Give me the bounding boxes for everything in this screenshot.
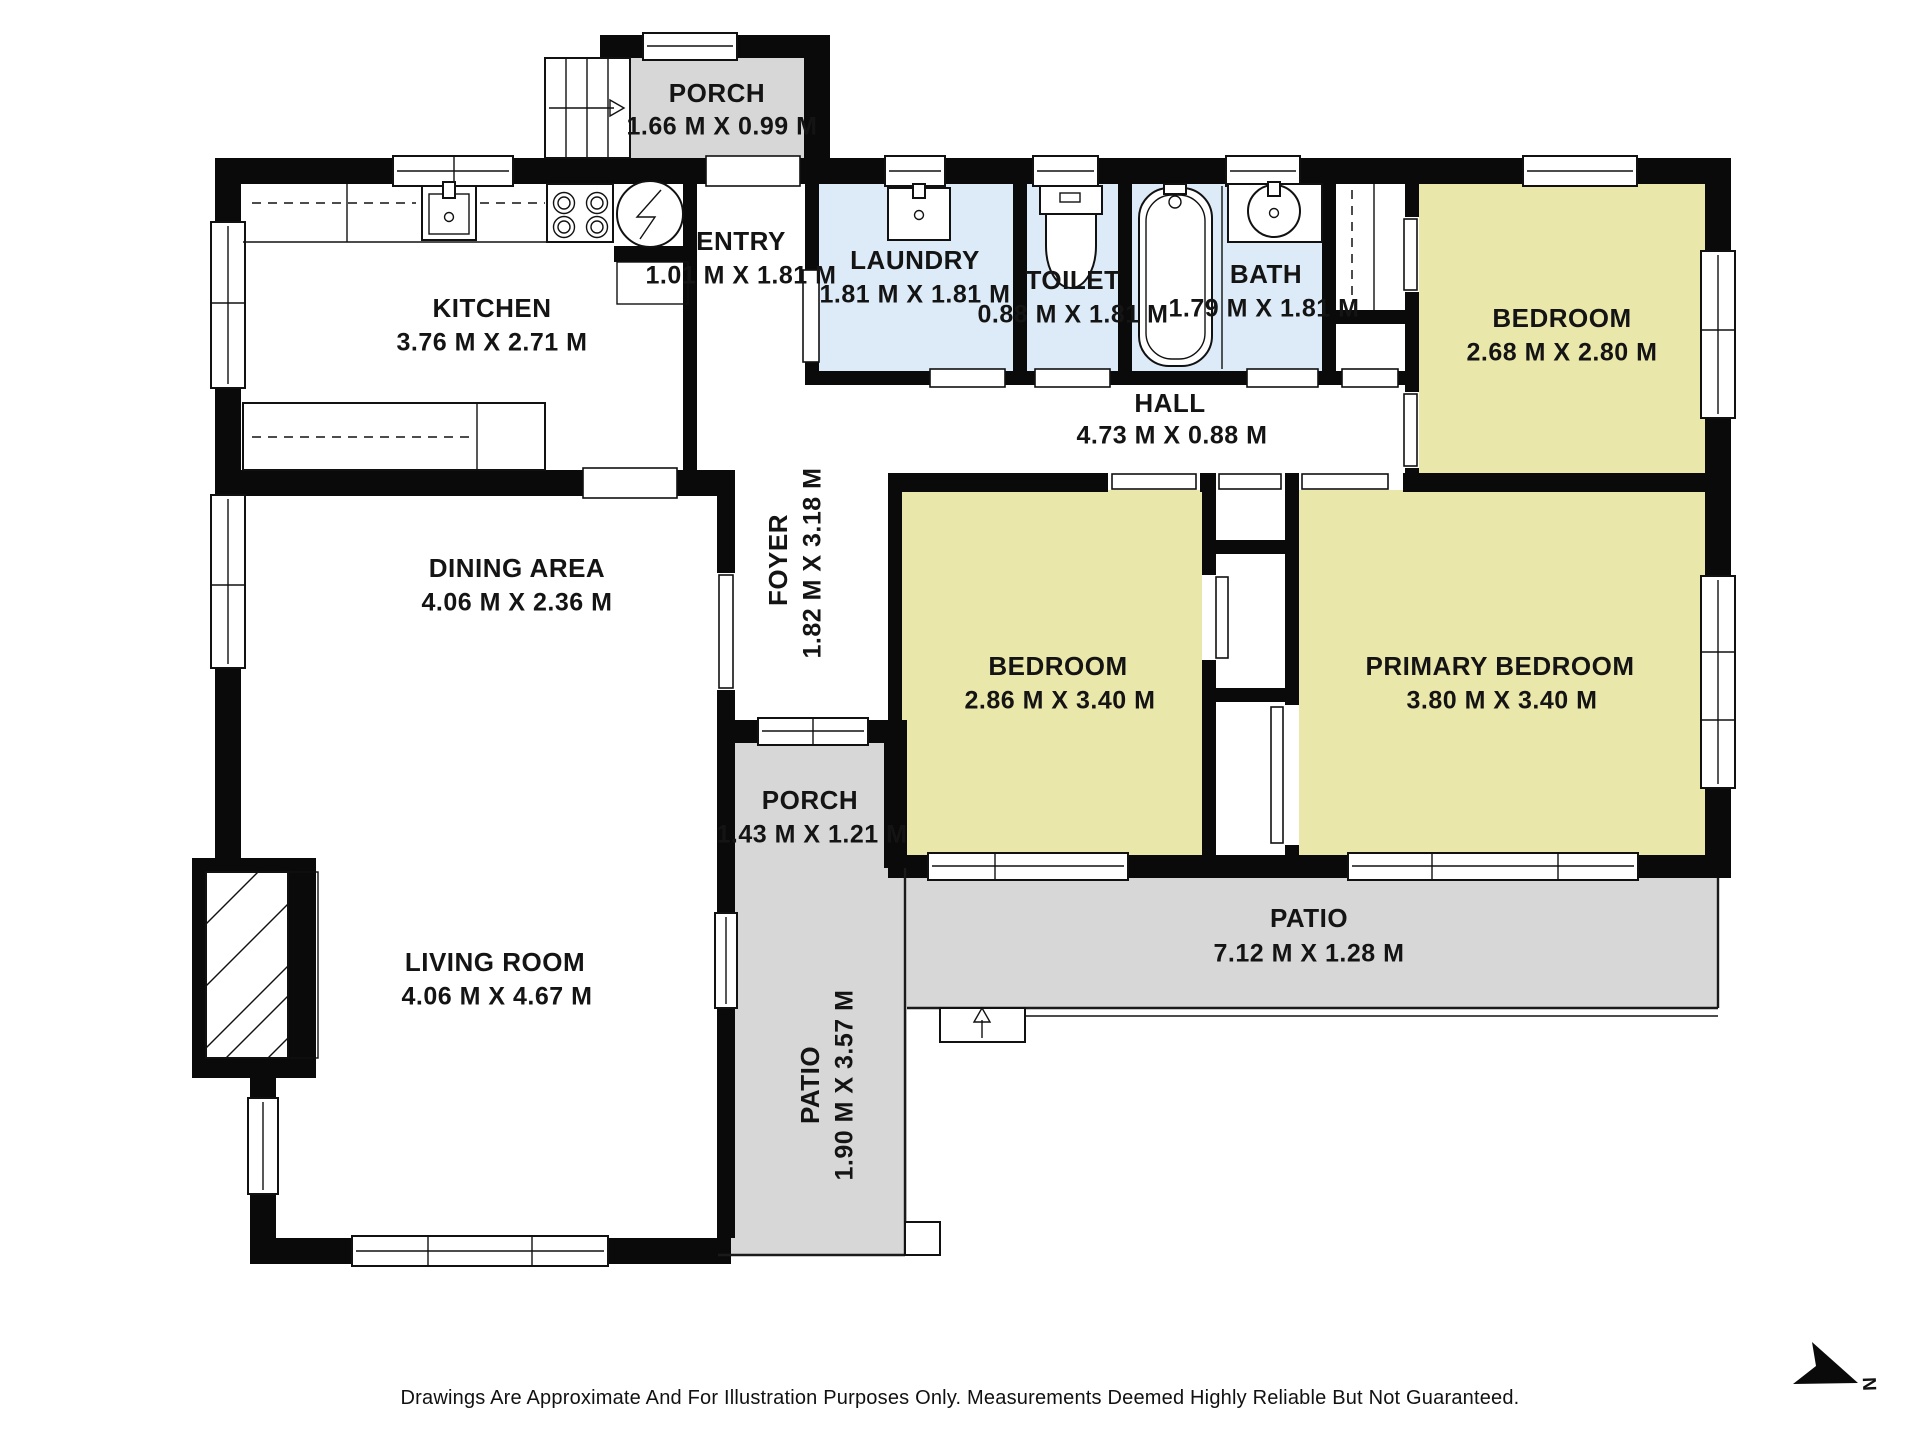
patio-rear-label: PATIO [1270,903,1348,933]
primary-bedroom-label: PRIMARY BEDROOM [1366,651,1635,681]
porch-top-label: PORCH [669,78,765,108]
window [928,853,1128,880]
patio-side-dims: 1.90 M X 3.57 M [831,990,859,1181]
bedroom-mid-label: BEDROOM [988,651,1127,681]
window [715,913,737,1008]
dining-label: DINING AREA [429,553,605,583]
living-label: LIVING ROOM [405,947,585,977]
window [248,1098,278,1194]
kitchen-dims: 3.76 M X 2.71 M [397,329,588,357]
bedroom-mid-dims: 2.86 M X 3.40 M [965,687,1156,715]
floor-plan-svg: PORCH 1.66 M X 0.99 M KITCHEN 3.76 M X 2… [0,0,1920,1440]
entry-label: ENTRY [696,226,786,256]
cased-opening-kitchen [583,468,677,498]
window [1348,853,1638,880]
closet-rod [1352,184,1374,310]
dining-foyer-door [719,575,733,688]
bedroom-top-door [1404,394,1417,466]
bathtub [1139,184,1222,369]
dining-dims: 4.06 M X 2.36 M [422,589,613,617]
hall-dims: 4.73 M X 0.88 M [1077,422,1268,450]
bedroom-top-label: BEDROOM [1492,303,1631,333]
bath-door [1247,369,1318,387]
stairs [545,58,630,158]
window [211,222,245,388]
window [1523,156,1637,186]
window [643,33,737,60]
kitchen-label: KITCHEN [432,293,551,323]
laundry-door [930,369,1005,387]
window [1033,156,1098,186]
bedroom-top-dims: 2.68 M X 2.80 M [1467,339,1658,367]
patio-step [940,1008,1025,1042]
porch-mid-label: PORCH [762,785,858,815]
north-label: N [1858,1377,1879,1391]
bedroom-mid-door [1112,474,1196,489]
toilet-dims: 0.88 M X 1.81 M [978,301,1169,329]
entry-dims: 1.01 M X 1.81 M [646,262,837,290]
foyer-dims: 1.82 M X 3.18 M [799,468,827,659]
bathroom-sink [1228,182,1322,242]
fireplace [192,858,318,1078]
living-dims: 4.06 M X 4.67 M [402,983,593,1011]
kitchen-peninsula [243,403,545,470]
window [758,718,868,745]
hall-label: HALL [1134,388,1205,418]
room-porch-top [630,58,804,158]
window [885,156,945,186]
stove [547,184,613,242]
porch-mid-dims: 1.43 M X 1.21 M [717,821,908,849]
north-arrow-icon: N [1793,1342,1879,1391]
toilet-label: TOILET [1026,265,1121,295]
window [1226,156,1300,186]
patio-step-corner [905,1222,940,1255]
window [211,495,245,668]
floor-plan-page: PORCH 1.66 M X 0.99 M KITCHEN 3.76 M X 2… [0,0,1920,1440]
primary-bedroom-dims: 3.80 M X 3.40 M [1407,687,1598,715]
laundry-label: LAUNDRY [850,245,980,275]
kitchen-sink [422,182,476,240]
window [352,1236,608,1266]
patio-side-label: PATIO [795,1046,825,1124]
closet-top-door [1219,474,1281,489]
primary-bedroom-door [1302,474,1388,489]
window [1701,576,1735,788]
bedroom-top-closet-door [1404,219,1417,290]
porch-top-dims: 1.66 M X 0.99 M [627,113,818,141]
patio-rear-dims: 7.12 M X 1.28 M [1214,940,1405,968]
bath-dims: 1.79 M X 1.81 M [1169,295,1360,323]
foyer-label: FOYER [763,514,793,606]
window [1701,251,1735,418]
hall-closet-door [1342,369,1398,387]
laundry-sink [888,184,950,240]
disclaimer-text: Drawings Are Approximate And For Illustr… [401,1387,1520,1409]
toilet-door [1035,369,1110,387]
closet-mid-door [1216,577,1228,658]
front-door-opening [706,156,800,186]
bath-label: BATH [1230,259,1302,289]
closet-bottom-door [1271,707,1283,843]
